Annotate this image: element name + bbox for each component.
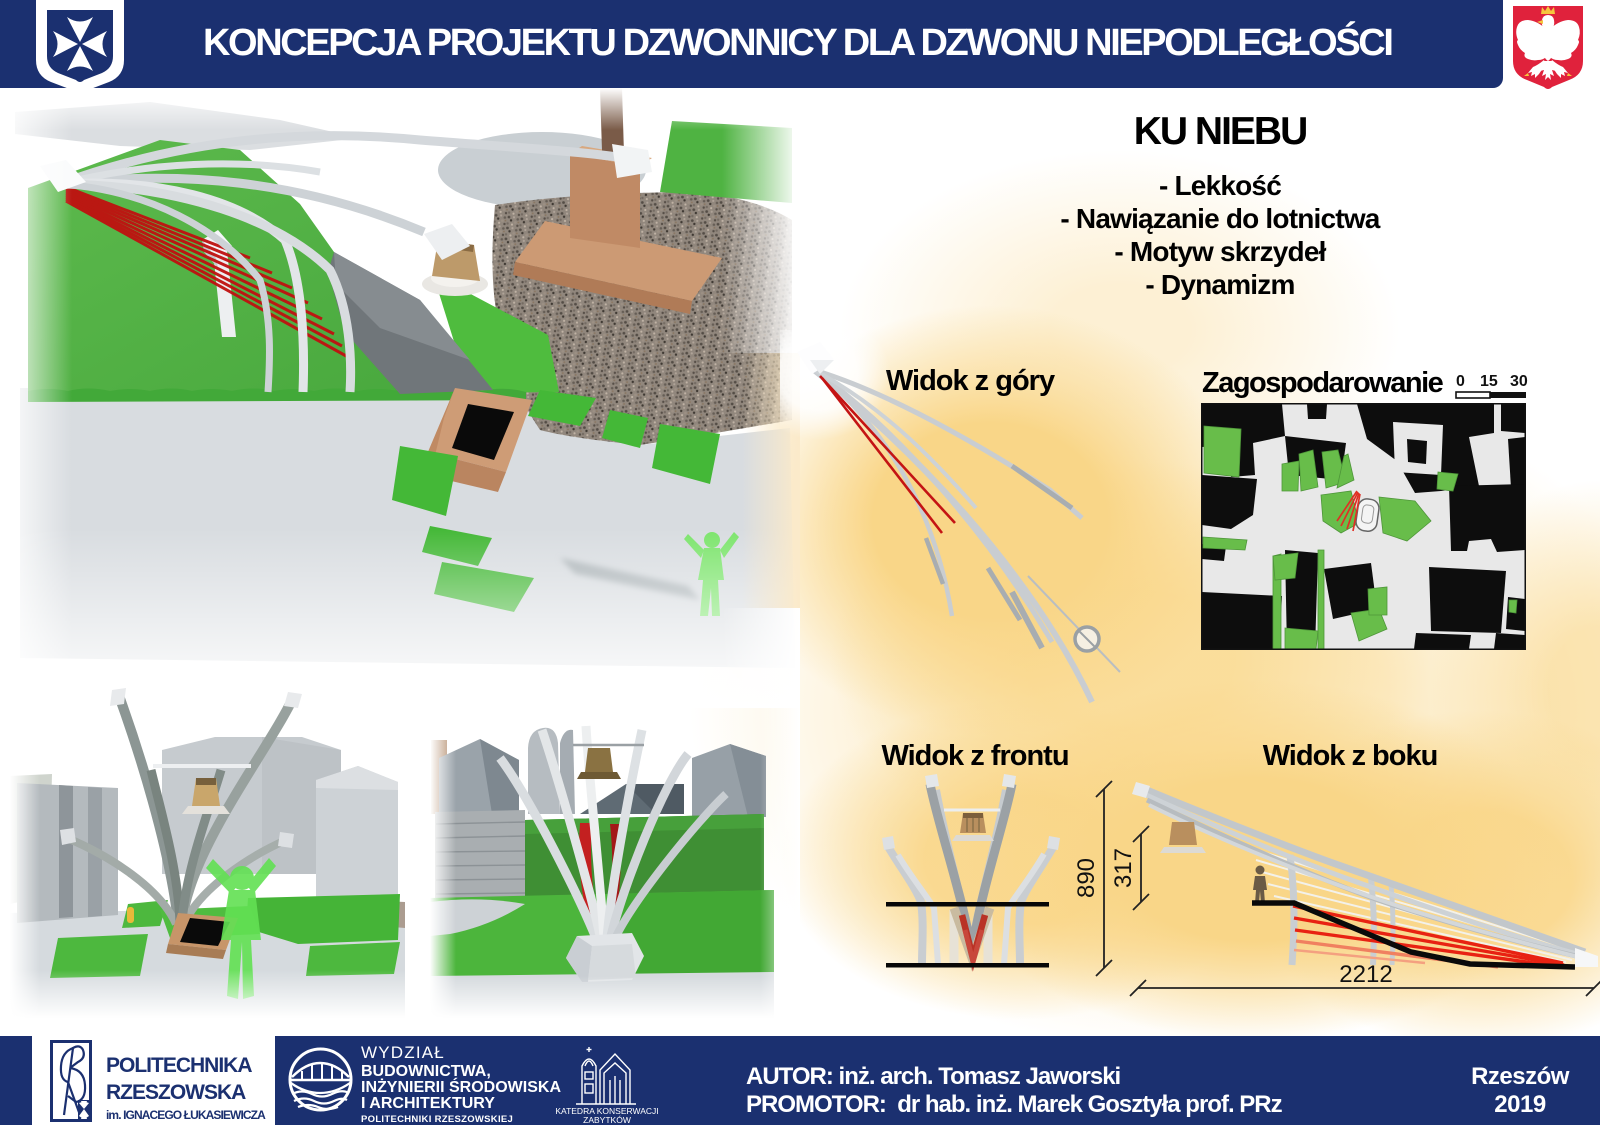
svg-text:30: 30 [1510, 373, 1528, 390]
svg-text:890: 890 [1073, 858, 1100, 898]
svg-text:317: 317 [1110, 848, 1137, 888]
svg-text:0: 0 [1456, 373, 1465, 390]
svg-text:15: 15 [1480, 373, 1498, 390]
svg-text:2212: 2212 [1339, 961, 1392, 988]
svg-text:ZABYTKÓW: ZABYTKÓW [583, 1115, 631, 1124]
